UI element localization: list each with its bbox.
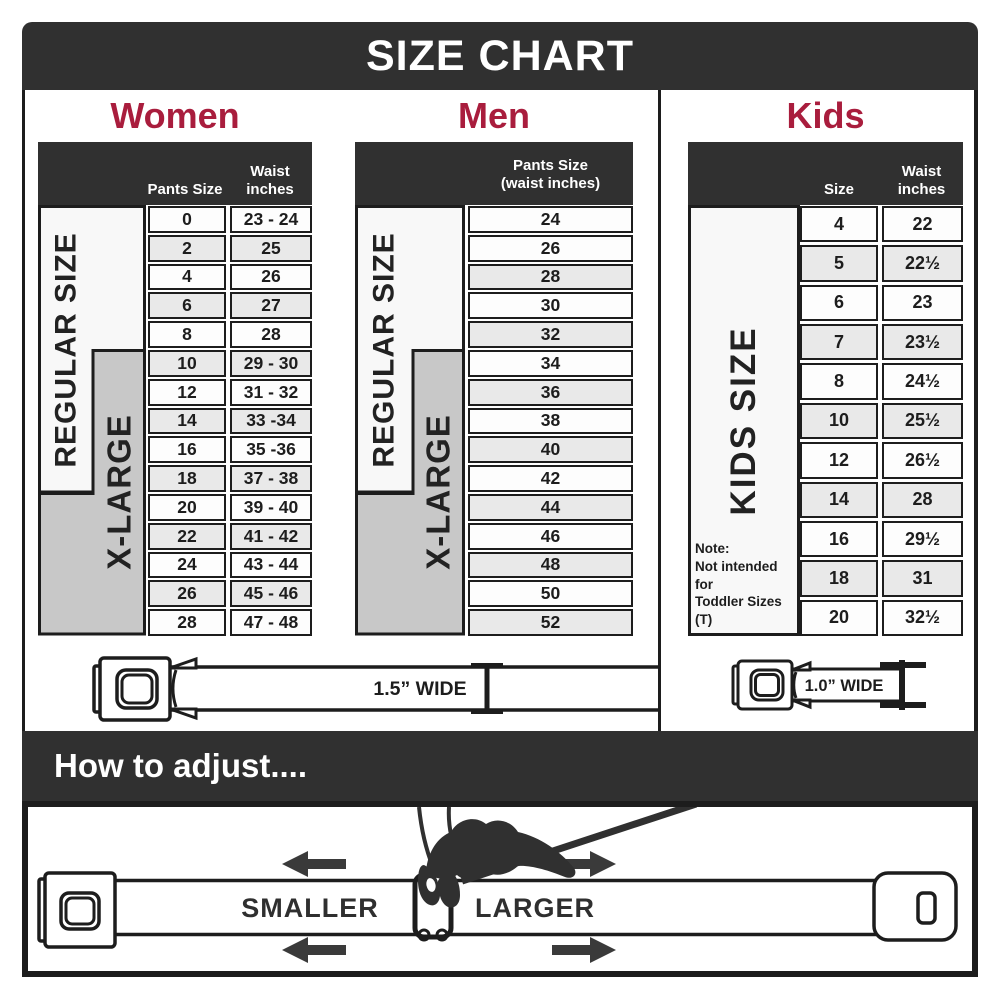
size-cell: 6 bbox=[148, 292, 226, 319]
waist-cell: 28 bbox=[230, 321, 312, 348]
belt-tip bbox=[874, 873, 956, 940]
men-section-heading: Men bbox=[355, 94, 633, 138]
arrow-right-icon bbox=[552, 937, 616, 963]
women-size-category-labels: REGULAR SIZE X-LARGE bbox=[38, 205, 148, 637]
men-regular-label: REGULAR SIZE bbox=[368, 232, 401, 467]
waist-cell: 29½ bbox=[882, 521, 963, 557]
kids-table-header: Size Waist inches bbox=[688, 142, 963, 205]
waist-cell: 31 bbox=[882, 560, 963, 596]
table-row: 14 33 -34 bbox=[148, 408, 312, 435]
table-row: 16 29½ bbox=[800, 521, 963, 557]
size-cell: 20 bbox=[148, 494, 226, 521]
men-table-header: Pants Size (waist inches) bbox=[355, 142, 633, 205]
table-row: 44 bbox=[468, 494, 633, 521]
table-row: 5 22½ bbox=[800, 245, 963, 281]
size-cell: 8 bbox=[148, 321, 226, 348]
men-pants-size-header: Pants Size (waist inches) bbox=[468, 157, 633, 195]
size-cell: 16 bbox=[800, 521, 878, 557]
size-cell: 30 bbox=[468, 292, 633, 319]
waist-cell: 26½ bbox=[882, 442, 963, 478]
table-row: 6 27 bbox=[148, 292, 312, 319]
waist-cell: 23 - 24 bbox=[230, 206, 312, 233]
size-cell: 28 bbox=[148, 609, 226, 636]
larger-label: LARGER bbox=[475, 893, 595, 923]
waist-cell: 22½ bbox=[882, 245, 963, 281]
size-cell: 18 bbox=[800, 560, 878, 596]
table-row: 20 32½ bbox=[800, 600, 963, 636]
table-row: 24 43 - 44 bbox=[148, 552, 312, 579]
table-row: 36 bbox=[468, 379, 633, 406]
waist-cell: 31 - 32 bbox=[230, 379, 312, 406]
size-cell: 16 bbox=[148, 436, 226, 463]
kids-belt-width-illustration: 1.0” WIDE bbox=[730, 652, 942, 718]
table-row: 14 28 bbox=[800, 482, 963, 518]
size-cell: 52 bbox=[468, 609, 633, 636]
waist-cell: 28 bbox=[882, 482, 963, 518]
waist-cell: 45 - 46 bbox=[230, 580, 312, 607]
size-cell: 14 bbox=[800, 482, 878, 518]
kids-section-heading: Kids bbox=[688, 94, 963, 138]
size-cell: 0 bbox=[148, 206, 226, 233]
size-cell: 4 bbox=[148, 264, 226, 291]
table-row: 10 29 - 30 bbox=[148, 350, 312, 377]
table-row: 20 39 - 40 bbox=[148, 494, 312, 521]
table-row: 12 31 - 32 bbox=[148, 379, 312, 406]
waist-cell: 43 - 44 bbox=[230, 552, 312, 579]
seatbelt-buckle-icon bbox=[39, 873, 115, 947]
waist-cell: 41 - 42 bbox=[230, 523, 312, 550]
waist-cell: 23 bbox=[882, 285, 963, 321]
size-cell: 24 bbox=[148, 552, 226, 579]
waist-cell: 24½ bbox=[882, 363, 963, 399]
table-row: 16 35 -36 bbox=[148, 436, 312, 463]
title-banner: SIZE CHART bbox=[22, 22, 978, 90]
table-row: 8 28 bbox=[148, 321, 312, 348]
adult-belt-width-label: 1.5” WIDE bbox=[373, 678, 466, 700]
kids-size-label-box: KIDS SIZE Note: Not intended for Toddler… bbox=[688, 205, 800, 636]
size-cell: 12 bbox=[148, 379, 226, 406]
waist-cell: 32½ bbox=[882, 600, 963, 636]
size-cell: 20 bbox=[800, 600, 878, 636]
size-cell: 8 bbox=[800, 363, 878, 399]
size-cell: 36 bbox=[468, 379, 633, 406]
table-row: 4 22 bbox=[800, 206, 963, 242]
kids-toddler-note: Note: Not intended for Toddler Sizes (T) bbox=[695, 540, 797, 629]
table-row: 2 25 bbox=[148, 235, 312, 262]
how-to-adjust-banner: How to adjust.... bbox=[22, 731, 978, 801]
size-cell: 22 bbox=[148, 523, 226, 550]
waist-cell: 35 -36 bbox=[230, 436, 312, 463]
table-row: 28 47 - 48 bbox=[148, 609, 312, 636]
table-row: 50 bbox=[468, 580, 633, 607]
women-regular-label: REGULAR SIZE bbox=[50, 232, 83, 467]
size-cell: 2 bbox=[148, 235, 226, 262]
table-row: 26 bbox=[468, 235, 633, 262]
men-xlarge-label: X-LARGE bbox=[420, 414, 457, 570]
table-row: 0 23 - 24 bbox=[148, 206, 312, 233]
table-row: 52 bbox=[468, 609, 633, 636]
women-table-header: Pants Size Waist inches bbox=[38, 142, 312, 205]
size-cell: 26 bbox=[148, 580, 226, 607]
table-row: 40 bbox=[468, 436, 633, 463]
waist-cell: 47 - 48 bbox=[230, 609, 312, 636]
size-cell: 50 bbox=[468, 580, 633, 607]
table-row: 18 37 - 38 bbox=[148, 465, 312, 492]
table-row: 38 bbox=[468, 408, 633, 435]
table-row: 6 23 bbox=[800, 285, 963, 321]
women-size-table: 0 23 - 24 2 25 4 26 6 27 8 28 10 29 - 30… bbox=[148, 206, 312, 636]
waist-cell: 23½ bbox=[882, 324, 963, 360]
size-cell: 5 bbox=[800, 245, 878, 281]
size-cell: 42 bbox=[468, 465, 633, 492]
size-cell: 28 bbox=[468, 264, 633, 291]
how-to-adjust-heading: How to adjust.... bbox=[54, 747, 307, 785]
table-row: 46 bbox=[468, 523, 633, 550]
table-row: 18 31 bbox=[800, 560, 963, 596]
women-section-heading: Women bbox=[38, 94, 312, 138]
size-cell: 24 bbox=[468, 206, 633, 233]
kids-size-table: 4 22 5 22½ 6 23 7 23½ 8 24½ 10 25½ 12 26… bbox=[800, 206, 963, 636]
size-cell: 12 bbox=[800, 442, 878, 478]
adult-belt-width-illustration: 1.5” WIDE bbox=[90, 650, 658, 730]
waist-cell: 39 - 40 bbox=[230, 494, 312, 521]
waist-cell: 27 bbox=[230, 292, 312, 319]
table-row: 4 26 bbox=[148, 264, 312, 291]
size-cell: 32 bbox=[468, 321, 633, 348]
table-row: 22 41 - 42 bbox=[148, 523, 312, 550]
men-size-category-labels: REGULAR SIZE X-LARGE bbox=[355, 205, 468, 637]
women-xlarge-label: X-LARGE bbox=[101, 414, 138, 570]
arrow-left-icon bbox=[282, 937, 346, 963]
table-row: 10 25½ bbox=[800, 403, 963, 439]
table-row: 7 23½ bbox=[800, 324, 963, 360]
kids-waist-header: Waist inches bbox=[880, 163, 963, 201]
waist-cell: 29 - 30 bbox=[230, 350, 312, 377]
size-cell: 4 bbox=[800, 206, 878, 242]
table-row: 8 24½ bbox=[800, 363, 963, 399]
kids-belt-width-label: 1.0” WIDE bbox=[805, 677, 884, 695]
kids-size-header: Size bbox=[800, 181, 878, 200]
size-chart-page: SIZE CHART Women Men Kids Pants Size Wai… bbox=[0, 0, 1000, 1000]
size-cell: 10 bbox=[148, 350, 226, 377]
size-cell: 34 bbox=[468, 350, 633, 377]
table-row: 30 bbox=[468, 292, 633, 319]
adjustment-diagram: SMALLER LARGER bbox=[28, 807, 972, 971]
size-cell: 10 bbox=[800, 403, 878, 439]
waist-cell: 37 - 38 bbox=[230, 465, 312, 492]
size-cell: 48 bbox=[468, 552, 633, 579]
size-cell: 44 bbox=[468, 494, 633, 521]
section-divider bbox=[658, 90, 661, 731]
table-row: 48 bbox=[468, 552, 633, 579]
waist-cell: 22 bbox=[882, 206, 963, 242]
waist-cell: 25½ bbox=[882, 403, 963, 439]
size-cell: 6 bbox=[800, 285, 878, 321]
table-row: 12 26½ bbox=[800, 442, 963, 478]
women-pants-size-header: Pants Size bbox=[142, 181, 228, 200]
table-row: 34 bbox=[468, 350, 633, 377]
table-row: 42 bbox=[468, 465, 633, 492]
waist-cell: 25 bbox=[230, 235, 312, 262]
table-row: 28 bbox=[468, 264, 633, 291]
adjustment-diagram-box: SMALLER LARGER bbox=[22, 801, 978, 977]
size-cell: 7 bbox=[800, 324, 878, 360]
size-cell: 26 bbox=[468, 235, 633, 262]
arrow-left-icon bbox=[282, 851, 346, 877]
kids-size-label: KIDS SIZE bbox=[724, 326, 764, 515]
size-cell: 18 bbox=[148, 465, 226, 492]
smaller-label: SMALLER bbox=[241, 893, 379, 923]
size-cell: 40 bbox=[468, 436, 633, 463]
size-cell: 46 bbox=[468, 523, 633, 550]
women-waist-header: Waist inches bbox=[228, 163, 312, 201]
men-size-table: 24 26 28 30 32 34 36 38 40 42 44 46 48 5… bbox=[468, 206, 633, 636]
table-row: 26 45 - 46 bbox=[148, 580, 312, 607]
table-row: 24 bbox=[468, 206, 633, 233]
table-row: 32 bbox=[468, 321, 633, 348]
waist-cell: 33 -34 bbox=[230, 408, 312, 435]
size-cell: 14 bbox=[148, 408, 226, 435]
size-cell: 38 bbox=[468, 408, 633, 435]
waist-cell: 26 bbox=[230, 264, 312, 291]
page-title: SIZE CHART bbox=[366, 32, 634, 81]
